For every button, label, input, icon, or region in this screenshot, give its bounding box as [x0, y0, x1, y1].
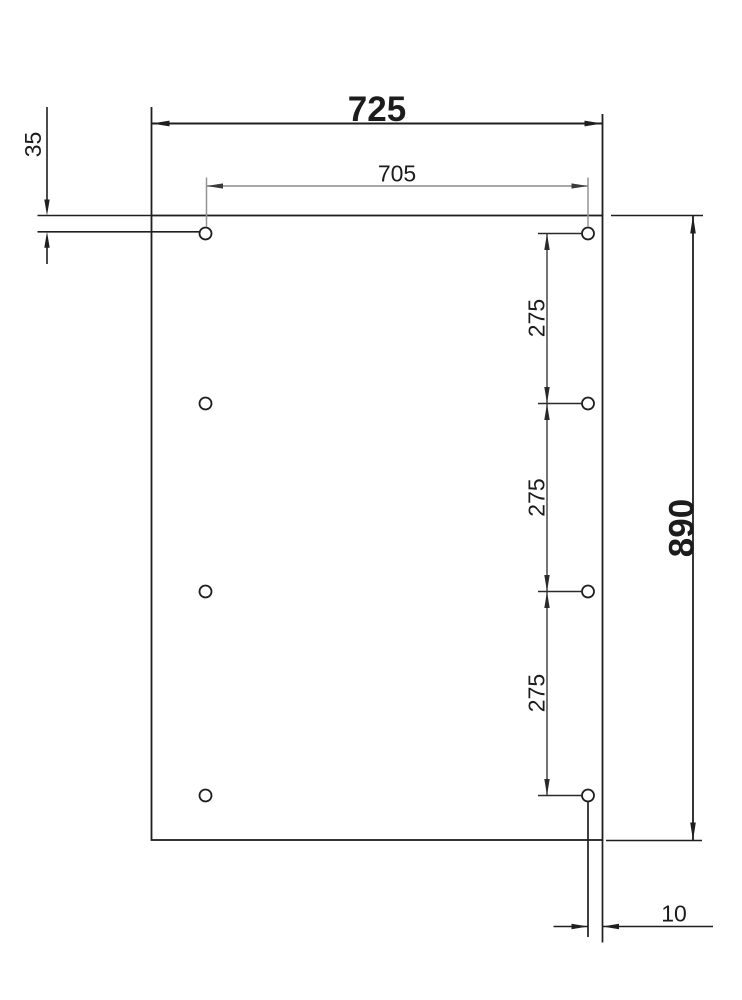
svg-text:890: 890 — [663, 499, 702, 557]
svg-text:705: 705 — [378, 161, 416, 187]
svg-text:10: 10 — [661, 901, 687, 927]
svg-text:275: 275 — [524, 674, 550, 712]
svg-text:275: 275 — [524, 478, 550, 516]
svg-text:725: 725 — [348, 90, 406, 129]
svg-text:35: 35 — [20, 132, 46, 158]
svg-text:275: 275 — [524, 299, 550, 337]
